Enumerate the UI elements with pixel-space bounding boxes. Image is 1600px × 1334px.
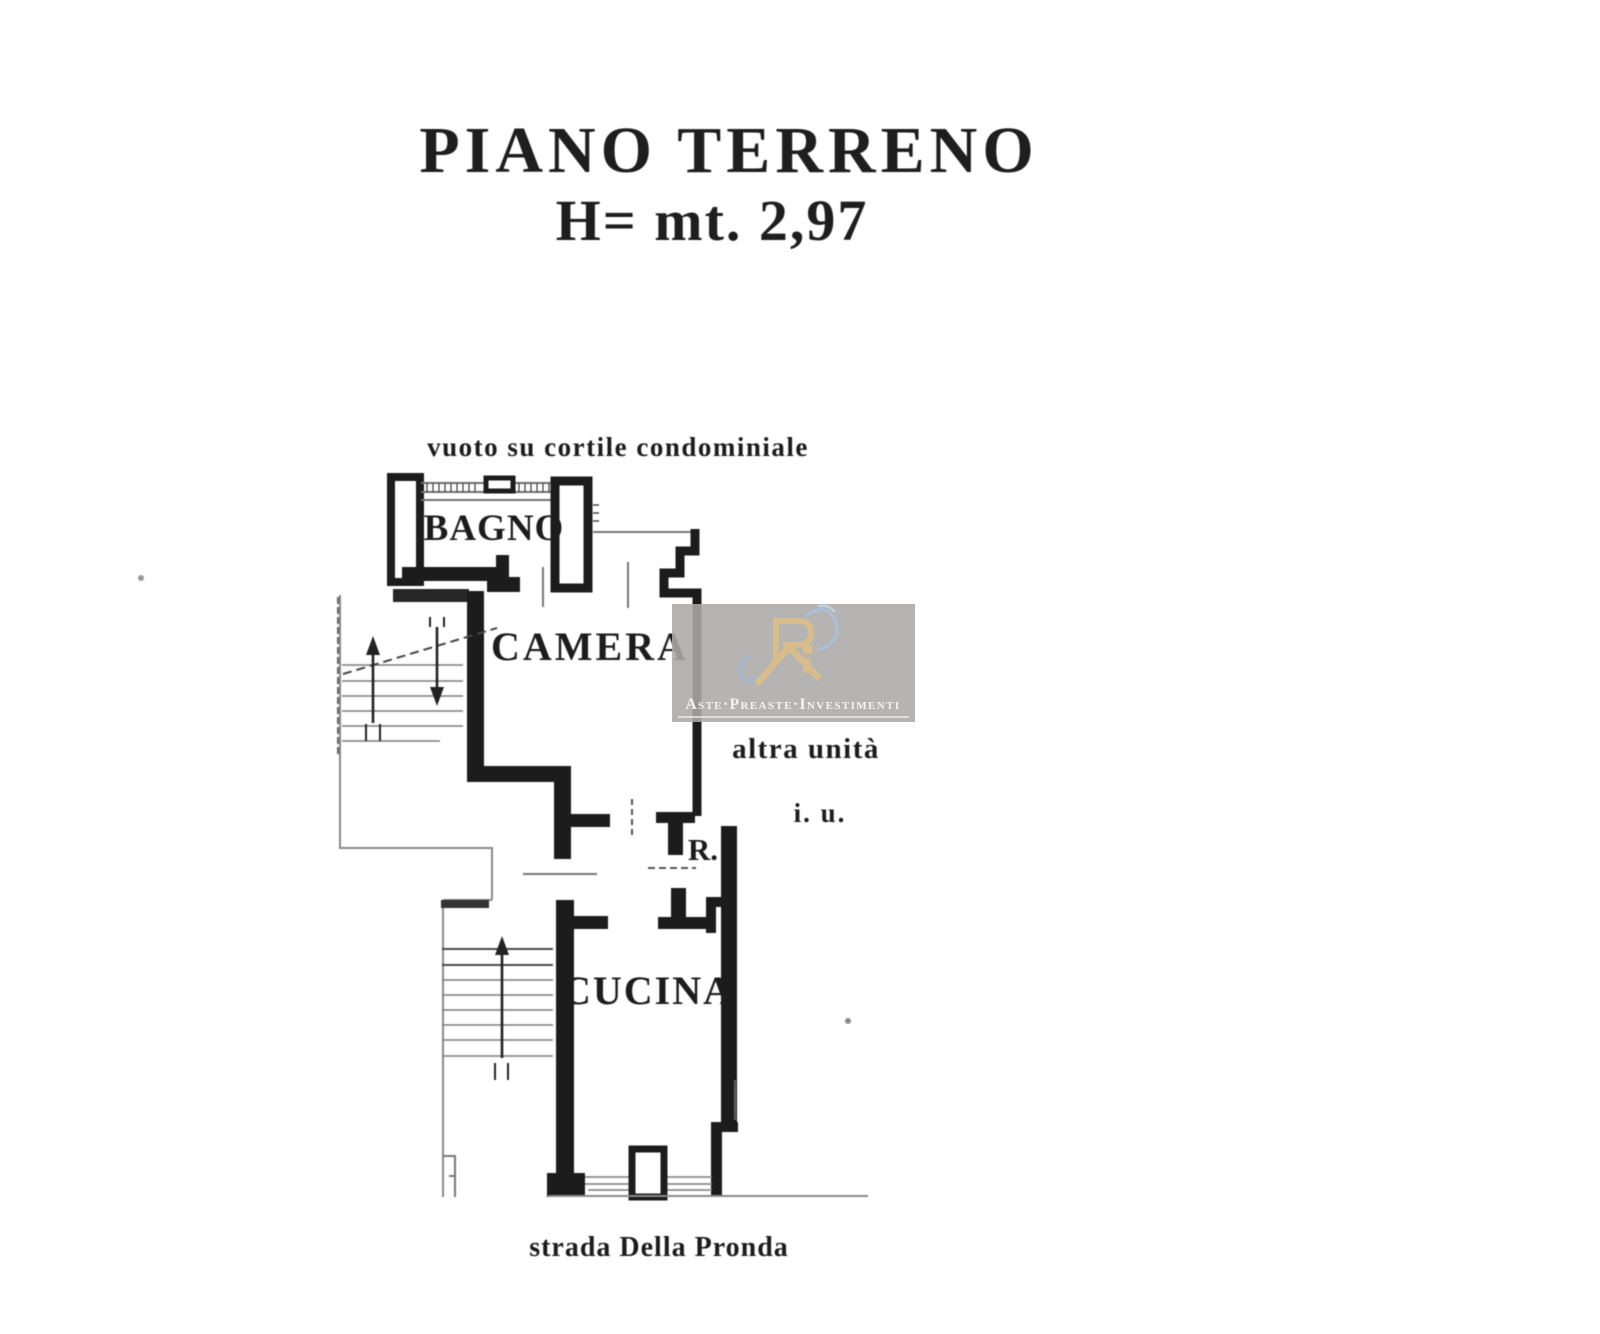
label-altra-unita: altra unità: [732, 733, 880, 765]
label-r: R.: [688, 832, 718, 867]
title-line-2: H= mt. 2,97: [556, 188, 869, 253]
label-courtyard: vuoto su cortile condominiale: [427, 432, 809, 462]
label-street: strada Della Pronda: [529, 1232, 789, 1263]
watermark-text: Aste·Preaste·Investimenti: [685, 696, 900, 713]
window-icon: [486, 478, 513, 491]
room-label-cucina: CUCINA: [562, 968, 734, 1013]
room-label-bagno: BAGNO: [424, 508, 565, 549]
watermark: Aste·Preaste·Investimenti: [672, 604, 915, 722]
down-arrow-icon: [430, 617, 444, 706]
landing-foot: [443, 1156, 455, 1197]
title-line-1: PIANO TERRENO: [419, 114, 1038, 187]
label-i-u: i. u.: [794, 798, 847, 828]
floor-plan-image: PIANO TERRENO H= mt. 2,97: [0, 0, 1600, 1334]
scan-speck: [138, 575, 144, 581]
scan-speck: [845, 1018, 851, 1024]
staircase-lower: [441, 900, 553, 1080]
street-entrance: [548, 1149, 868, 1197]
room-label-camera: CAMERA: [491, 624, 689, 669]
floor-plan: vuoto su cortile condominiale BAGNO CAME…: [138, 432, 880, 1263]
floor-plan-document: PIANO TERRENO H= mt. 2,97: [0, 0, 1600, 1334]
title-block: PIANO TERRENO H= mt. 2,97: [419, 114, 1038, 253]
up-arrow-icon: [495, 936, 509, 1080]
